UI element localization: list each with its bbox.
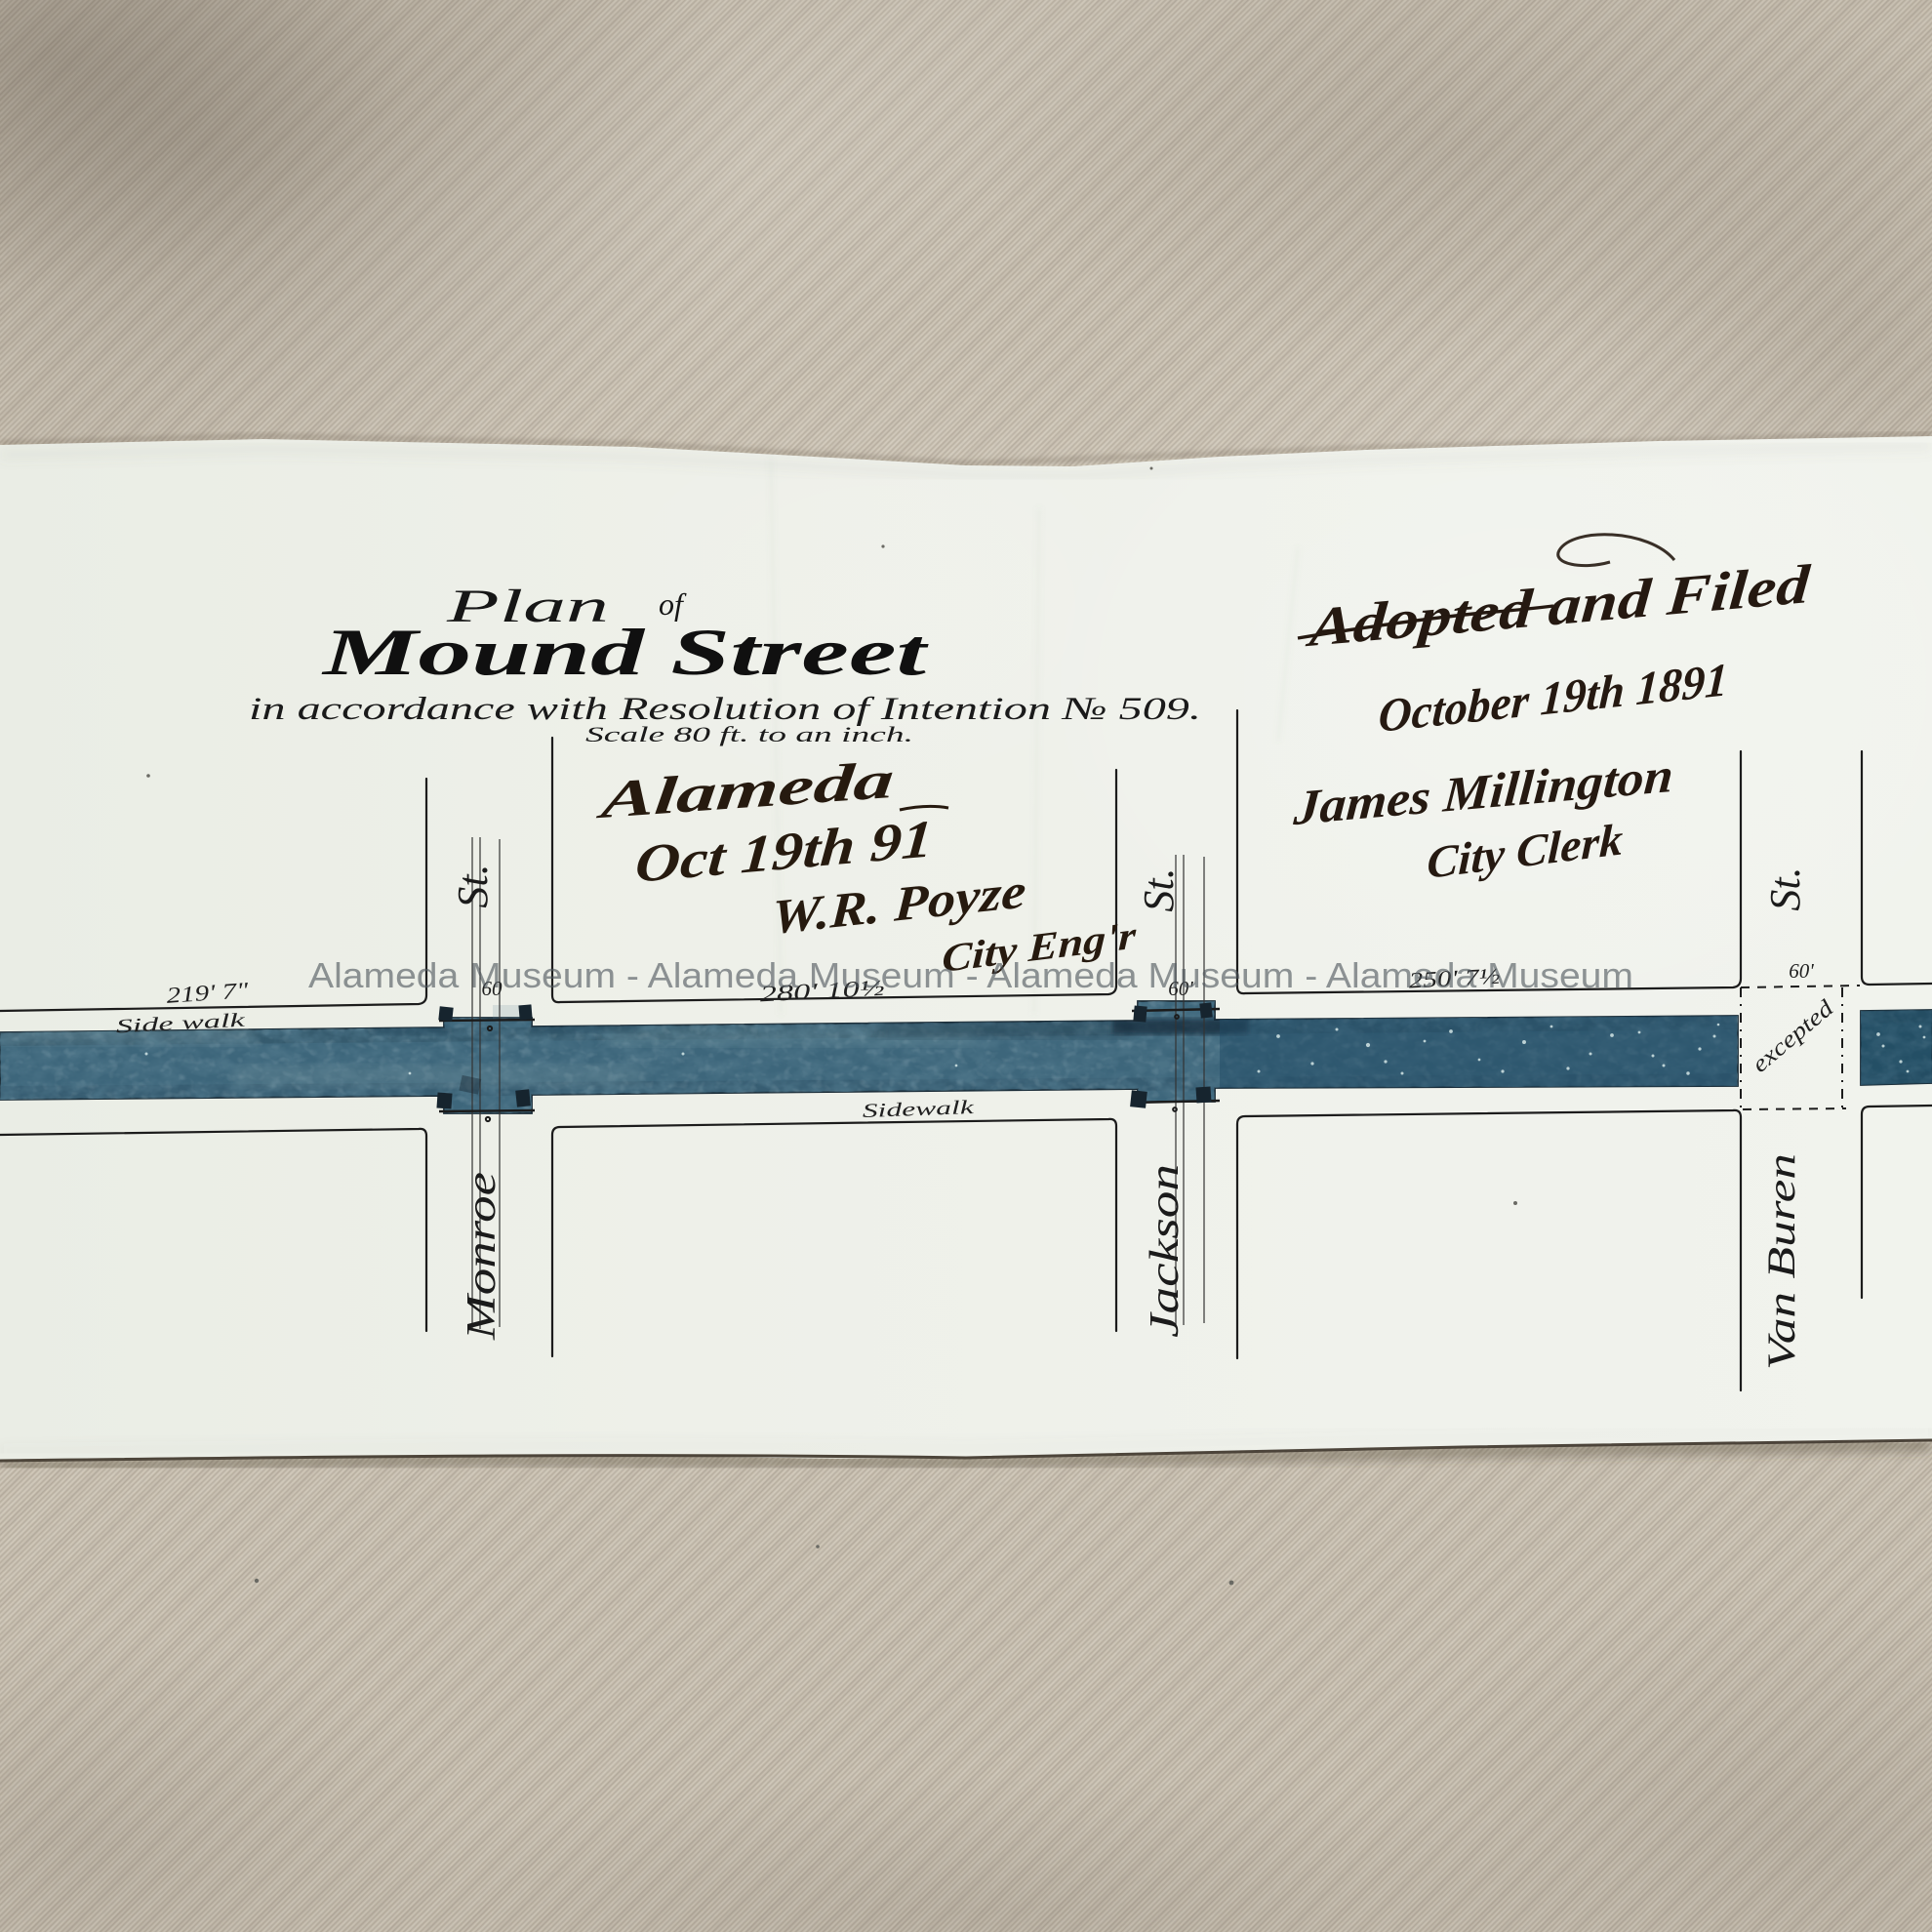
- svg-text:St.: St.: [449, 864, 497, 907]
- svg-text:Alameda Museum - Alameda Museu: Alameda Museum - Alameda Museum - Alamed…: [308, 955, 1633, 995]
- svg-text:Jackson: Jackson: [1143, 1164, 1187, 1338]
- svg-text:St.: St.: [1761, 866, 1809, 910]
- svg-text:Monroe: Monroe: [460, 1172, 504, 1341]
- svg-text:Scale 80 ft. to an inch.: Scale 80 ft. to an inch.: [585, 722, 913, 746]
- svg-text:Mound Street: Mound Street: [321, 615, 929, 689]
- svg-text:Van Buren: Van Buren: [1759, 1153, 1803, 1370]
- svg-text:60': 60': [1789, 959, 1814, 983]
- svg-text:Sidewalk: Sidewalk: [862, 1097, 975, 1122]
- svg-text:St.: St.: [1135, 867, 1183, 911]
